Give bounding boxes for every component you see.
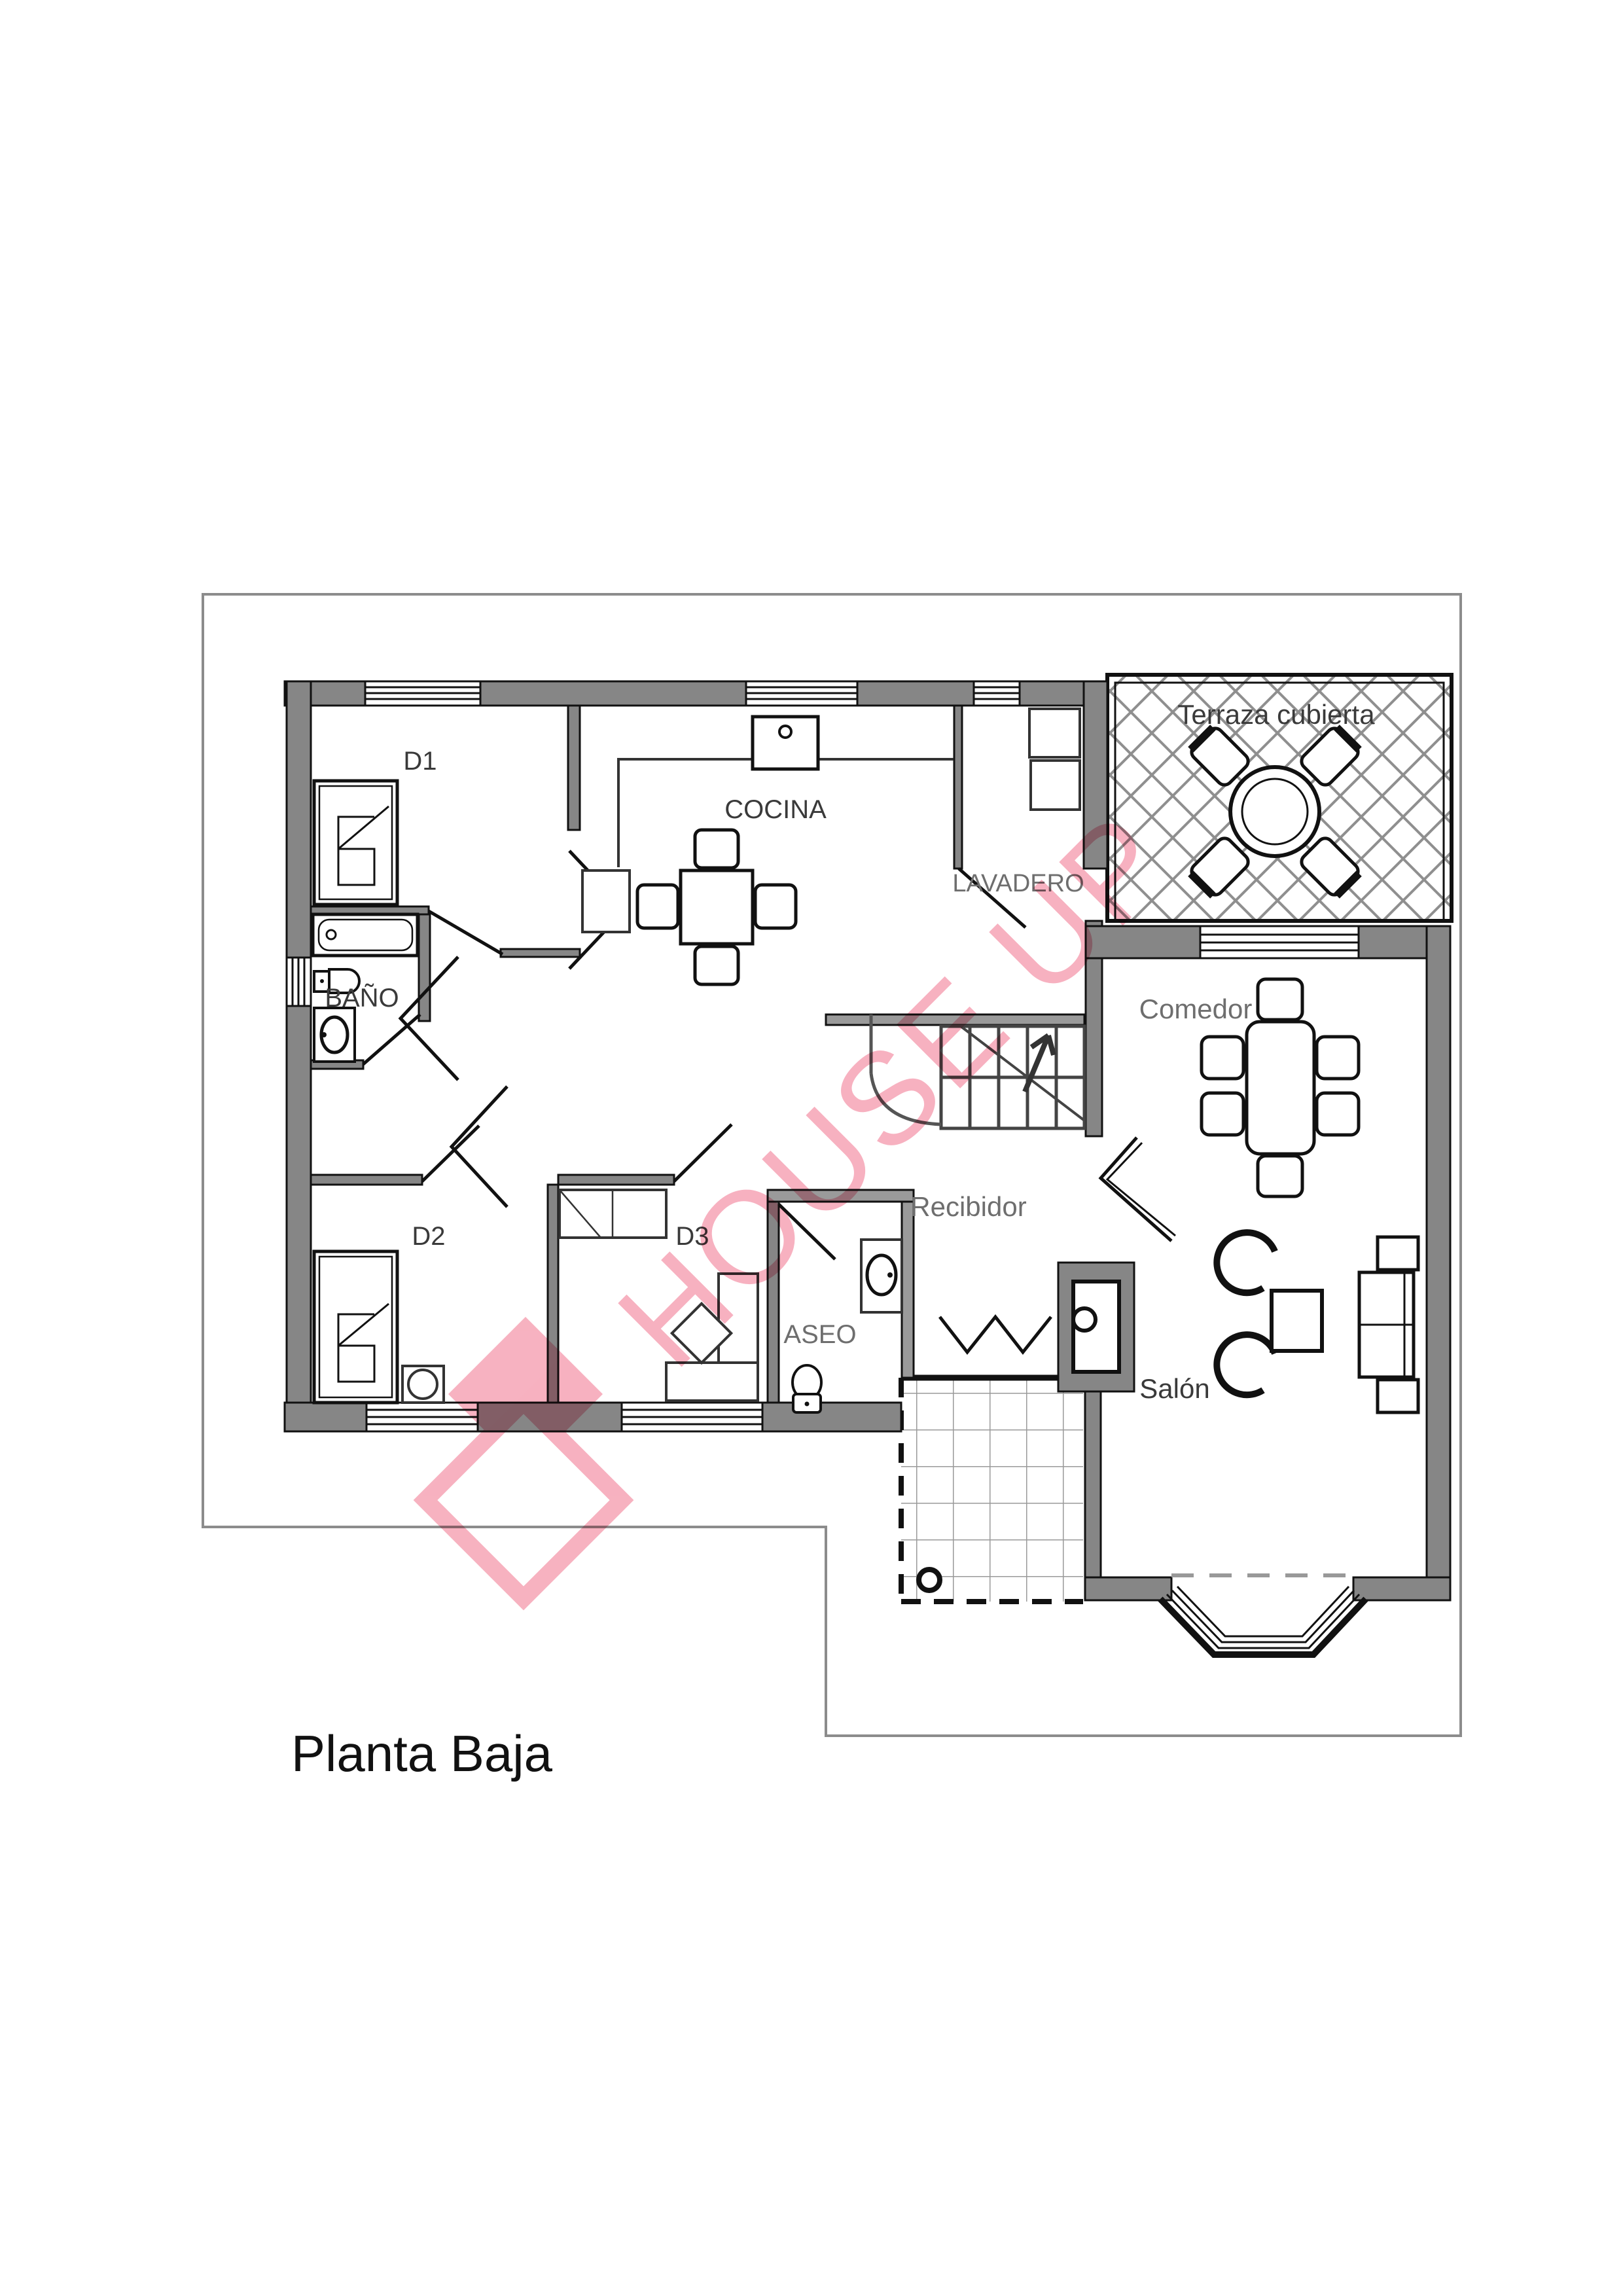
page-title: Planta Baja xyxy=(291,1725,553,1782)
label-salon: Salón xyxy=(1139,1373,1209,1404)
window-d3-bottom xyxy=(622,1403,762,1431)
terrace-table xyxy=(1230,767,1319,856)
floor-plan-page: { "title": { "text": "Planta Baja" }, "w… xyxy=(0,0,1623,2296)
window-comedor-terrace xyxy=(1200,926,1359,958)
entry-porch xyxy=(901,1378,1083,1602)
window-cocina-top xyxy=(746,681,857,706)
label-recibidor: Recibidor xyxy=(910,1191,1026,1222)
label-comedor: Comedor xyxy=(1139,994,1253,1024)
bathtub xyxy=(313,914,418,956)
entrance-door-column xyxy=(1073,1282,1119,1372)
porch-drain xyxy=(919,1570,940,1590)
label-aseo: ASEO xyxy=(783,1320,856,1349)
coffee-table xyxy=(1272,1291,1322,1351)
floor-plan-drawing: D1 COCINA LAVADERO Terraza cubierta BAÑO… xyxy=(0,0,1623,2296)
window-d1-top xyxy=(365,681,480,706)
bed-d1 xyxy=(314,781,397,905)
side-table-2 xyxy=(1378,1380,1418,1412)
side-table-1 xyxy=(1378,1237,1418,1270)
window-bano-left xyxy=(287,958,311,1006)
label-d1: D1 xyxy=(403,747,437,776)
label-bano: BAÑO xyxy=(325,983,399,1013)
washbasin-bano xyxy=(314,1008,355,1062)
